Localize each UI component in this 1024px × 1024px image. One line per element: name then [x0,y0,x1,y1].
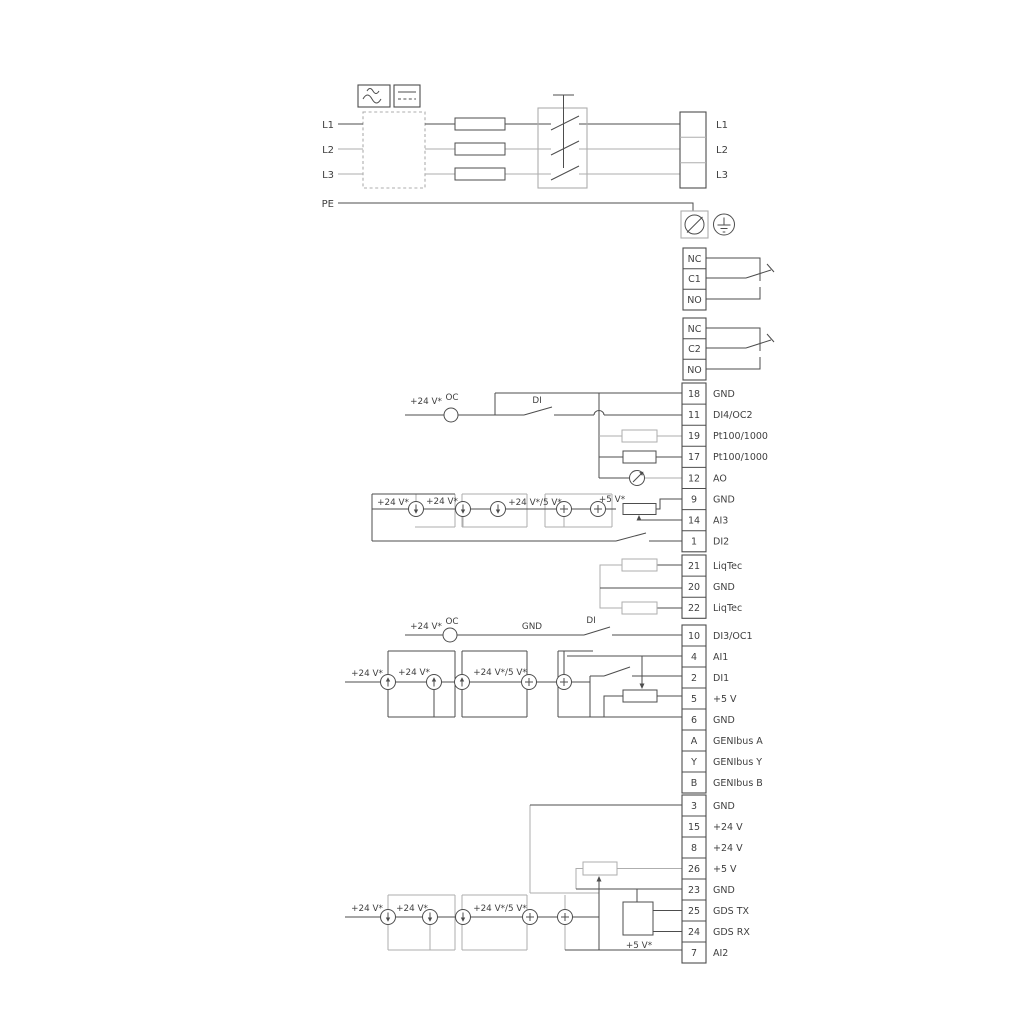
terminal-label: GDS RX [713,927,750,938]
label-di3: DI [586,616,595,626]
terminal-number: 19 [688,431,700,442]
fuse-l3 [455,168,505,180]
potentiometer-ai2 [583,862,617,882]
relay-1-c: C1 [688,274,701,285]
relay-2-no: NO [687,365,702,376]
relay-1-nc: NC [688,254,702,265]
wiring-diagram: L1 L2 L3 PE L1 L2 L3 NC C1 NO NC C2 NO [0,0,1024,1024]
terminal-label: DI3/OC1 [713,631,753,642]
terminal-label: GND [713,801,735,812]
terminal-label: +5 V [713,864,737,875]
terminal-label: +24 V [713,843,743,854]
terminal-number: 7 [691,948,697,959]
terminal-number: B [691,778,698,789]
current-source-icon [491,502,506,517]
voltage-source-icon [557,675,572,690]
terminal-number: 2 [691,673,697,684]
terminal-label: AI2 [713,948,728,959]
relay-2-contact [706,328,774,369]
relay-1-contact [706,258,774,299]
terminal-label: GENIbus A [713,736,763,747]
power-section: L1 L2 L3 PE L1 L2 L3 [322,85,735,238]
terminal-strip-1: 18 GND 11 DI4/OC2 19 Pt100/1000 17 Pt100… [682,383,768,552]
label-plus24v-a2: +24 V* [426,497,458,507]
label-plus24v-b2: +24 V* [398,668,430,678]
power-wires-dark [338,124,693,211]
label-oc1: OC [445,617,458,627]
label-plus24v-a1: +24 V* [377,498,409,508]
net-sources-c: +24 V* +24 V* +24 V*/5 V* +5 V* [345,805,682,951]
fuse-l2 [455,143,505,155]
terminal-number: Y [690,757,697,768]
terminal-number: 24 [688,927,700,938]
net-sources-b: +24 V* +24 V* +24 V*/5 V* [345,651,682,717]
power-out-label-l1: L1 [716,120,728,131]
terminal-number: 18 [688,389,700,400]
terminal-label: LiqTec [713,603,742,614]
terminal-label: GND [713,495,735,506]
label-plus24v-oc1: +24 V* [410,622,442,632]
relay-2-c: C2 [688,344,701,355]
terminal-number: 10 [688,631,700,642]
power-wires-gray [338,149,680,174]
power-in-label-l1: L1 [322,120,334,131]
terminal-number: 9 [691,495,697,506]
relay-2: NC C2 NO [683,318,774,380]
terminal-strip-4: 3 GND 15 +24 V 8 +24 V 26 +5 V 23 GND 25… [682,795,750,963]
net-sources-a: +24 V* +24 V* +24 V*/5 V* +5 V* [372,494,682,541]
terminal-number: 21 [688,561,700,572]
relay-2-nc: NC [688,324,702,335]
terminal-number: 23 [688,885,700,896]
power-out-label-l2: L2 [716,145,728,156]
fuses [455,118,505,180]
ac-symbol-box [358,85,390,107]
voltage-source-icon [558,910,573,925]
terminal-label: DI4/OC2 [713,410,753,421]
terminal-number: A [691,736,698,747]
analog-output-meter-icon [599,471,682,486]
terminal-label: GND [713,389,735,400]
terminal-number: 6 [691,715,697,726]
pt100-sensor-2 [623,451,656,463]
terminal-number: 5 [691,694,697,705]
current-source-icon [409,502,424,517]
label-24v-5v-b: +24 V*/5 V* [473,668,527,678]
terminal-number: 8 [691,843,697,854]
terminal-label: +5 V [713,694,737,705]
terminal-strip-2: 21 LiqTec 20 GND 22 LiqTec [682,555,742,618]
label-24v-5v-c: +24 V*/5 V* [473,904,527,914]
power-in-label-l2: L2 [322,145,334,156]
label-gnd-float: GND [522,622,542,632]
terminal-number: 14 [688,516,700,527]
label-oc2: OC [445,393,458,403]
power-in-label-l3: L3 [322,170,334,181]
fuse-l1 [455,118,505,130]
label-24v-5v-a: +24 V*/5 V* [508,498,562,508]
power-in-label-pe: PE [322,199,334,210]
label-plus5v-a: +5 V* [599,495,626,505]
net-liqtec [600,559,682,614]
terminal-label: GENIbus B [713,778,763,789]
terminal-number: 3 [691,801,697,812]
pe-screw-terminal [681,211,708,238]
terminal-label: AI1 [713,652,728,663]
current-source-icon [455,675,470,690]
terminal-label: GDS TX [713,906,750,917]
terminal-label: AI3 [713,516,728,527]
pt100-sensor-1 [622,430,657,442]
oc2-open-collector-icon [444,408,458,422]
net-di4-oc2: +24 V* OC DI [405,393,682,486]
terminal-number: 4 [691,652,697,663]
oc1-open-collector-icon [443,628,457,642]
power-terminal-block [680,112,706,188]
label-plus24v-c1: +24 V* [351,904,383,914]
terminal-number: 1 [691,537,697,548]
relay-1: NC C1 NO [683,248,774,310]
terminal-number: 20 [688,582,700,593]
terminal-number: 12 [688,474,700,485]
terminal-number: 15 [688,822,700,833]
gds-sensor-box [623,902,653,935]
net-di3-oc1: +24 V* OC GND DI [405,616,682,642]
label-plus24v-c2: +24 V* [396,904,428,914]
terminal-label: GND [713,885,735,896]
terminal-number: 22 [688,603,700,614]
liqtec-sensor-1 [622,559,657,571]
terminal-label: Pt100/1000 [713,431,768,442]
terminal-label: DI1 [713,673,729,684]
terminal-label: GENIbus Y [713,757,762,768]
dc-symbol-box [394,85,420,107]
relay-1-no: NO [687,295,702,306]
terminal-number: 11 [688,410,700,421]
terminal-number: 25 [688,906,700,917]
terminal-number: 26 [688,864,700,875]
terminal-number: 17 [688,452,700,463]
liqtec-sensor-2 [622,602,657,614]
emc-filter-box [363,112,425,188]
terminal-label: AO [713,474,727,485]
terminal-label: +24 V [713,822,743,833]
current-source-icon [456,910,471,925]
earth-ground-icon [714,214,735,235]
label-plus24v-oc2: +24 V* [410,397,442,407]
label-plus24v-b1: +24 V* [351,669,383,679]
label-di4: DI [532,396,541,406]
terminal-strip-3: 10 DI3/OC1 4 AI1 2 DI1 5 +5 V 6 GND A GE… [682,625,763,793]
potentiometer-ai3 [623,504,656,521]
label-plus5v-gds: +5 V* [626,941,653,951]
terminal-label: DI2 [713,537,729,548]
terminal-label: LiqTec [713,561,742,572]
terminal-label: GND [713,715,735,726]
terminal-label: GND [713,582,735,593]
terminal-label: Pt100/1000 [713,452,768,463]
potentiometer-ai1 [623,684,657,703]
power-out-label-l3: L3 [716,170,728,181]
